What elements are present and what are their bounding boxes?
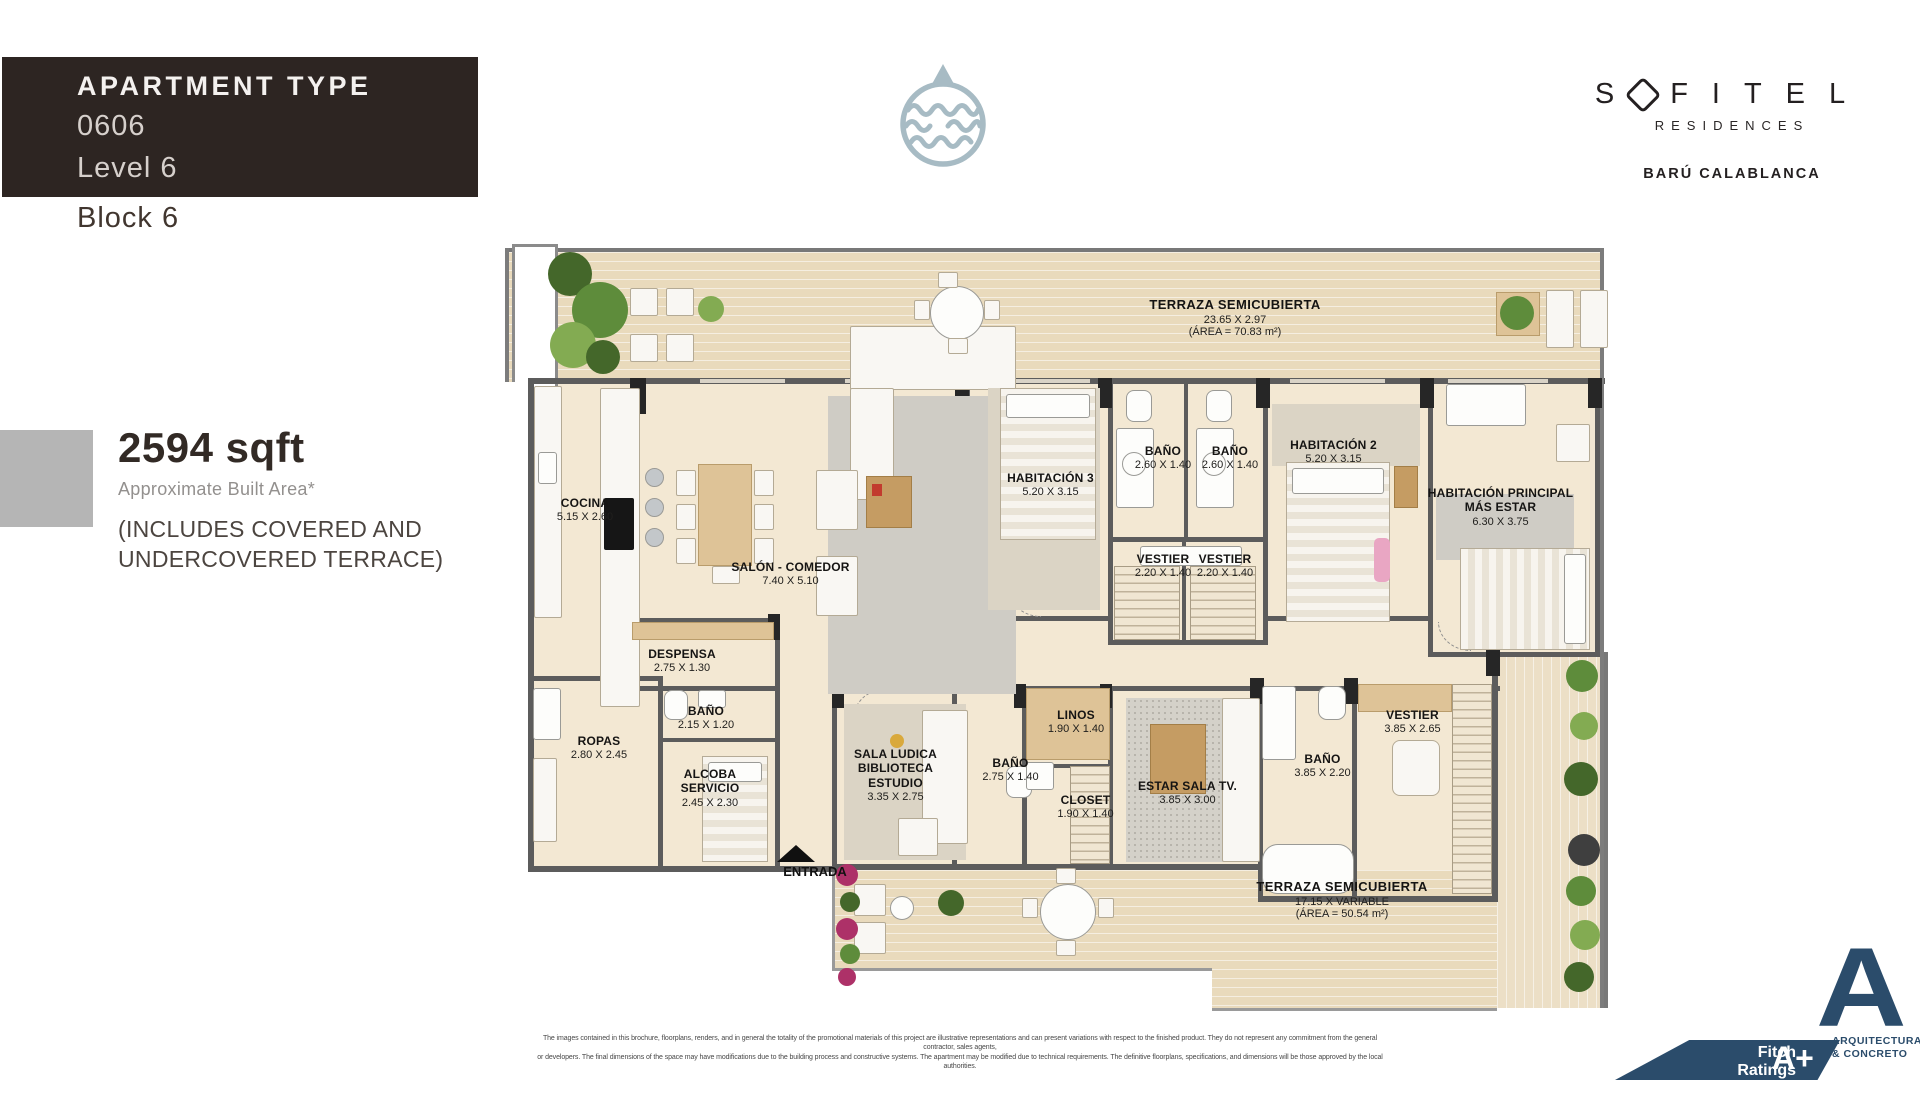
room-name: ROPAS xyxy=(539,734,659,748)
room-dims: 1.90 X 1.40 xyxy=(1033,808,1138,820)
room-name: HABITACIÓN 2 xyxy=(1256,438,1411,452)
furniture-dining-table xyxy=(698,464,752,566)
sofitel-letter-s: S xyxy=(1595,78,1614,111)
terrace-top-floor xyxy=(505,248,1602,384)
room-name: SALÓN - COMEDOR xyxy=(688,560,893,574)
room-dims: 5.15 X 2.60 xyxy=(530,511,640,523)
furniture-deco-book xyxy=(872,484,882,496)
wall xyxy=(505,248,509,382)
room-dims: 6.30 X 3.75 xyxy=(1408,516,1593,528)
wall xyxy=(660,738,778,742)
room-label-despensa: DESPENSA 2.75 X 1.30 xyxy=(622,647,742,674)
furniture-stool xyxy=(645,468,664,487)
room-name: DESPENSA xyxy=(622,647,742,661)
wall xyxy=(832,864,1260,870)
room-dims: 5.20 X 3.15 xyxy=(973,486,1128,498)
room-dims: 5.20 X 3.15 xyxy=(1256,453,1411,465)
furniture-pantry-shelf xyxy=(632,622,774,640)
plant xyxy=(1570,712,1598,740)
legal-disclaimer: The images contained in this brochure, f… xyxy=(530,1034,1390,1072)
room-dims: 2.15 X 1.20 xyxy=(646,719,766,731)
furniture-pillows xyxy=(1006,394,1090,418)
room-label-ropas: ROPAS 2.80 X 2.45 xyxy=(539,734,659,761)
room-dims: 2.45 X 2.30 xyxy=(650,797,770,809)
furniture-toilet xyxy=(1206,390,1232,422)
room-area: (ÁREA = 50.54 m²) xyxy=(1222,908,1462,920)
room-name: HABITACIÓN PRINCIPAL MÁS ESTAR xyxy=(1408,486,1593,515)
wave-drop-logo-icon xyxy=(893,58,993,178)
terrace-bottom-left-floor xyxy=(832,870,1215,971)
room-area: (ÁREA = 70.83 m²) xyxy=(1085,326,1385,338)
window xyxy=(1290,379,1385,383)
arquitectura-concreto-logo-icon: A xyxy=(1816,942,1907,1034)
plant xyxy=(1564,962,1594,992)
plant xyxy=(1500,296,1534,330)
room-name: BAÑO xyxy=(953,756,1068,770)
room-name: HABITACIÓN 3 xyxy=(973,471,1128,485)
room-dims: 2.75 X 1.40 xyxy=(953,771,1068,783)
furniture-toilet xyxy=(1126,390,1152,422)
furniture-pillows xyxy=(1564,554,1586,644)
legal-disclaimer-line1: The images contained in this brochure, f… xyxy=(530,1034,1390,1053)
room-name: LINOS xyxy=(1026,708,1126,722)
window xyxy=(700,379,785,383)
flower-plant xyxy=(836,918,858,940)
plant xyxy=(698,296,724,322)
room-label-linos: LINOS 1.90 X 1.40 xyxy=(1026,708,1126,735)
furniture-pillows xyxy=(1292,468,1384,494)
wall xyxy=(1263,380,1268,642)
column xyxy=(1588,378,1602,408)
furniture-chair xyxy=(984,300,1000,320)
furniture-chair xyxy=(938,272,958,288)
room-dims: 1.90 X 1.40 xyxy=(1026,723,1126,735)
furniture-terrace-chair xyxy=(630,288,658,316)
room-dims: 3.85 X 2.20 xyxy=(1260,767,1385,779)
room-dims: 2.20 X 1.40 xyxy=(1175,567,1275,579)
room-name: BAÑO xyxy=(646,704,766,718)
apartment-unit: 0606 xyxy=(77,108,478,144)
fitch-grade: A+ xyxy=(1772,1040,1814,1077)
plant xyxy=(1566,660,1598,692)
room-label-sala-ludica: SALA LUDICA BIBLIOTECA ESTUDIO 3.35 X 2.… xyxy=(823,747,968,803)
fitch-line2: Score xyxy=(1700,1081,1796,1097)
terrace-right-floor xyxy=(1497,652,1608,1008)
column xyxy=(1256,378,1270,408)
plan-edge-strip xyxy=(505,382,529,622)
room-label-terraza-bottom: TERRAZA SEMICUBIERTA 17.15 X VARIABLE (Á… xyxy=(1222,879,1462,920)
column xyxy=(1098,378,1112,408)
room-label-vestier-principal: VESTIER 3.85 X 2.65 xyxy=(1355,708,1470,735)
arquitectura-label: ARQUITECTURA xyxy=(1832,1035,1920,1047)
wall xyxy=(1108,640,1268,645)
furniture-chair xyxy=(1098,898,1114,918)
plant xyxy=(1570,920,1600,950)
furniture-lounge-chair xyxy=(1546,290,1574,348)
gray-accent-square xyxy=(0,430,93,527)
room-dims: 2.75 X 1.30 xyxy=(622,662,742,674)
furniture-stool xyxy=(645,498,664,517)
room-name: VESTIER xyxy=(1175,552,1275,566)
room-label-habitacion3: HABITACIÓN 3 5.20 X 3.15 xyxy=(973,471,1128,498)
furniture-stool xyxy=(645,528,664,547)
furniture-terrace-table xyxy=(1040,884,1096,940)
room-dims: 17.15 X VARIABLE xyxy=(1222,896,1462,908)
furniture-side-table xyxy=(898,818,938,856)
room-dims: 3.85 X 2.65 xyxy=(1355,723,1470,735)
sqft-caption: Approximate Built Area* xyxy=(118,479,443,500)
plant xyxy=(840,944,860,964)
sqft-value: 2594 sqft xyxy=(118,424,443,472)
room-label-habitacion2: HABITACIÓN 2 5.20 X 3.15 xyxy=(1256,438,1411,465)
furniture-chair xyxy=(676,470,696,496)
concreto-label: & CONCRETO xyxy=(1832,1048,1907,1060)
entrance-arrow-icon xyxy=(777,845,815,862)
room-label-bano-servicio: BAÑO 2.15 X 1.20 xyxy=(646,704,766,731)
furniture-chair xyxy=(914,300,930,320)
room-label-cocina: COCINA 5.15 X 2.60 xyxy=(530,496,640,523)
furniture-terrace-chair xyxy=(630,334,658,362)
apartment-block: Block 6 xyxy=(77,202,179,235)
furniture-chair xyxy=(1056,940,1076,956)
room-name: VESTIER xyxy=(1355,708,1470,722)
brochure-page: { "header": { "apartment_type_label": "A… xyxy=(0,0,1920,1080)
room-name: TERRAZA SEMICUBIERTA xyxy=(1085,297,1385,313)
furniture-pink-pillow xyxy=(1374,538,1390,582)
furniture-ottoman xyxy=(1392,740,1440,796)
furniture-armchair xyxy=(1556,424,1590,462)
room-label-terraza-top: TERRAZA SEMICUBIERTA 23.65 X 2.97 (ÁREA … xyxy=(1085,297,1385,338)
furniture-kitchen-sink xyxy=(538,452,557,484)
furniture-terrace-table xyxy=(890,896,914,920)
furniture-chair xyxy=(754,504,774,530)
planter-dark xyxy=(1568,834,1600,866)
wall xyxy=(1428,652,1600,657)
furniture-chair xyxy=(948,338,968,354)
apartment-type-title: APARTMENT TYPE xyxy=(77,71,478,102)
plant xyxy=(938,890,964,916)
furniture-chair xyxy=(676,504,696,530)
room-dims: 3.35 X 2.75 xyxy=(823,791,968,803)
room-name: BAÑO xyxy=(1260,752,1385,766)
column xyxy=(1344,678,1358,704)
room-label-vestier-2: VESTIER 2.20 X 1.40 xyxy=(1175,552,1275,579)
room-name: ESTAR SALA TV. xyxy=(1110,779,1265,793)
furniture-dresser xyxy=(1446,384,1526,426)
furniture-chair xyxy=(754,470,774,496)
furniture-laundry-counter xyxy=(533,758,557,842)
room-dims: 2.80 X 2.45 xyxy=(539,749,659,761)
column xyxy=(1420,378,1434,408)
wall xyxy=(1108,537,1268,542)
furniture-armchair xyxy=(816,470,858,530)
legal-disclaimer-line2: or developers. The final dimensions of t… xyxy=(530,1053,1390,1072)
sqft-includes-note: (INCLUDES COVERED AND UNDERCOVERED TERRA… xyxy=(118,514,443,575)
furniture-washer xyxy=(533,688,561,740)
room-label-estar-sala-tv: ESTAR SALA TV. 3.85 X 3.00 xyxy=(1110,779,1265,806)
room-name: ALCOBA SERVICIO xyxy=(650,767,770,796)
furniture-cushion xyxy=(890,734,904,748)
entrance-label: ENTRADA xyxy=(755,864,875,879)
sofitel-diamond-o-icon xyxy=(1625,76,1662,113)
furniture-sofa xyxy=(850,326,1016,390)
plant xyxy=(586,340,620,374)
residences-label: RESIDENCES xyxy=(1576,118,1888,133)
furniture-toilet xyxy=(1318,686,1346,720)
furniture-terrace-chair xyxy=(666,334,694,362)
plant xyxy=(1566,876,1596,906)
room-label-bano-principal: BAÑO 3.85 X 2.20 xyxy=(1260,752,1385,779)
room-label-habitacion-principal: HABITACIÓN PRINCIPAL MÁS ESTAR 6.30 X 3.… xyxy=(1408,486,1593,528)
built-area-block: 2594 sqft Approximate Built Area* (INCLU… xyxy=(118,424,443,575)
room-name: COCINA xyxy=(530,496,640,510)
room-name: TERRAZA SEMICUBIERTA xyxy=(1222,879,1462,895)
furniture-lounge-chair xyxy=(1580,290,1608,348)
room-name: SALA LUDICA BIBLIOTECA ESTUDIO xyxy=(823,747,968,790)
wall xyxy=(775,618,780,870)
furniture-vanity xyxy=(1262,686,1296,760)
column xyxy=(1486,650,1500,676)
furniture-chair xyxy=(1056,868,1076,884)
room-label-salon-comedor: SALÓN - COMEDOR 7.40 X 5.10 xyxy=(688,560,893,587)
wall xyxy=(1492,652,1498,902)
plant xyxy=(1564,762,1598,796)
room-label-bano-sala: BAÑO 2.75 X 1.40 xyxy=(953,756,1068,783)
sofitel-wordmark: S FITEL xyxy=(1576,78,1888,111)
room-label-alcoba-servicio: ALCOBA SERVICIO 2.45 X 2.30 xyxy=(650,767,770,809)
window xyxy=(1448,379,1548,383)
wave-drop-logo-svg xyxy=(893,58,993,178)
furniture-chair xyxy=(1022,898,1038,918)
plant xyxy=(840,892,860,912)
apartment-type-panel: APARTMENT TYPE 0606 Level 6 xyxy=(2,57,478,197)
sofitel-brand-block: S FITEL RESIDENCES BARÚ CALABLANCA xyxy=(1576,78,1888,182)
wall xyxy=(1108,380,1113,642)
room-dims: 7.40 X 5.10 xyxy=(688,575,893,587)
room-dims: 3.85 X 3.00 xyxy=(1110,794,1265,806)
room-dims: 23.65 X 2.97 xyxy=(1085,314,1385,326)
apartment-level: Level 6 xyxy=(77,150,478,186)
wall xyxy=(528,676,662,681)
furniture-terrace-table xyxy=(930,286,984,340)
location-label: BARÚ CALABLANCA xyxy=(1576,166,1888,182)
sofitel-letters-rest: FITEL xyxy=(1670,78,1869,111)
flower-plant xyxy=(838,968,856,986)
wall xyxy=(1600,248,1604,1008)
furniture-terrace-chair xyxy=(666,288,694,316)
